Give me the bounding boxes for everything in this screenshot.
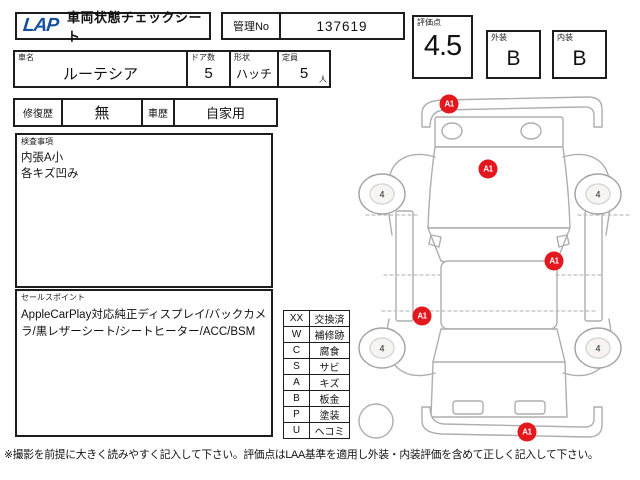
inspection-line: 内張A小 [21,150,267,166]
shape-label: 形状 [234,54,274,62]
exterior-grade-box: 外装 B [486,30,541,79]
footer-note: ※撮影を前提に大きく読みやすく記入して下さい。評価点はLAA基準を適用し外装・内… [4,446,638,462]
vehicle-info-table: 車名 ルーテシア ドア数 5 形状 ハッチ 定員 5 人 [13,50,331,88]
capacity-label: 定員 [282,54,326,62]
shape-value: ハッチ [234,62,274,85]
exterior-grade: B [491,47,536,71]
legend-row: XX交換済 [284,311,350,327]
shape-cell: 形状 ハッチ [231,52,279,86]
inspection-line: 各キズ凹み [21,166,267,182]
sales-points-label: セールスポイント [21,294,267,302]
inspection-box: 検査事項 内張A小 各キズ凹み [15,133,273,288]
interior-label: 内装 [557,34,602,42]
control-number-value: 137619 [281,14,403,38]
history-row: 修復歴 無 車歴 自家用 [13,98,278,127]
vehicle-name-label: 車名 [18,54,183,62]
capacity-unit: 人 [319,74,327,85]
legend-meaning: 板金 [310,391,350,407]
sales-points-text: AppleCarPlay対応純正ディスプレイ/バックカメラ/黒レザーシート/シー… [21,307,267,340]
legend-meaning: 塗装 [310,407,350,423]
sheet-title: 車両状態チェックシート [67,7,203,45]
tire-marker-rear-right-wheel: 4 [591,342,604,355]
legend-code: S [284,359,310,375]
capacity-cell: 定員 5 人 [279,52,329,86]
interior-grade: B [557,47,602,71]
interior-grade-box: 内装 B [552,30,607,79]
legend-meaning: 補修跡 [310,327,350,343]
legend-code: W [284,327,310,343]
doors-cell: ドア数 5 [188,52,231,86]
doors-value: 5 [191,62,226,85]
legend-code: A [284,375,310,391]
legend-meaning: 腐食 [310,343,350,359]
exterior-label: 外装 [491,34,536,42]
damage-marker-front-bumper: A1 [440,95,459,114]
usage-history-label: 車歴 [143,100,175,125]
inspection-label: 検査事項 [21,138,267,146]
score-value: 4.5 [417,30,468,63]
damage-marker-hood: A1 [479,159,498,178]
legend-row: C腐食 [284,343,350,359]
legend-row: B板金 [284,391,350,407]
tire-marker-rear-left-wheel: 4 [375,342,388,355]
car-outline-drawing [358,85,640,445]
legend-row: P塗装 [284,407,350,423]
legend-code: B [284,391,310,407]
legend-code: U [284,423,310,439]
legend-meaning: キズ [310,375,350,391]
legend-row: Sサビ [284,359,350,375]
sales-points-box: セールスポイント AppleCarPlay対応純正ディスプレイ/バックカメラ/黒… [15,289,273,437]
doors-label: ドア数 [191,54,226,62]
damage-marker-right-side: A1 [544,252,563,271]
legend-meaning: 交換済 [310,311,350,327]
damage-legend-table: XX交換済 W補修跡 C腐食 Sサビ Aキズ B板金 P塗装 Uヘコミ [283,310,350,439]
logo-title-box: LAP 車両状態チェックシート [15,12,211,40]
legend-code: XX [284,311,310,327]
vehicle-name-value: ルーテシア [18,62,183,85]
legend-code: C [284,343,310,359]
repair-history-label: 修復歴 [15,100,63,125]
legend-row: Aキズ [284,375,350,391]
damage-marker-left-side: A1 [413,307,432,326]
control-number-label: 管理No [223,14,281,38]
score-box: 評価点 4.5 [412,15,473,79]
tire-marker-front-left-wheel: 4 [375,188,388,201]
repair-history-value: 無 [63,100,143,125]
legend-meaning: ヘコミ [310,423,350,439]
usage-history-value: 自家用 [175,100,276,125]
control-number-box: 管理No 137619 [221,12,405,40]
vehicle-name-cell: 車名 ルーテシア [15,52,188,86]
score-label: 評価点 [417,19,468,27]
legend-code: P [284,407,310,423]
lap-logo: LAP [22,15,59,37]
damage-marker-rear-bumper: A1 [517,423,536,442]
car-diagram: A1A1A1A1A14444 [358,85,640,445]
legend-row: W補修跡 [284,327,350,343]
legend-meaning: サビ [310,359,350,375]
legend-row: Uヘコミ [284,423,350,439]
tire-marker-front-right-wheel: 4 [591,188,604,201]
